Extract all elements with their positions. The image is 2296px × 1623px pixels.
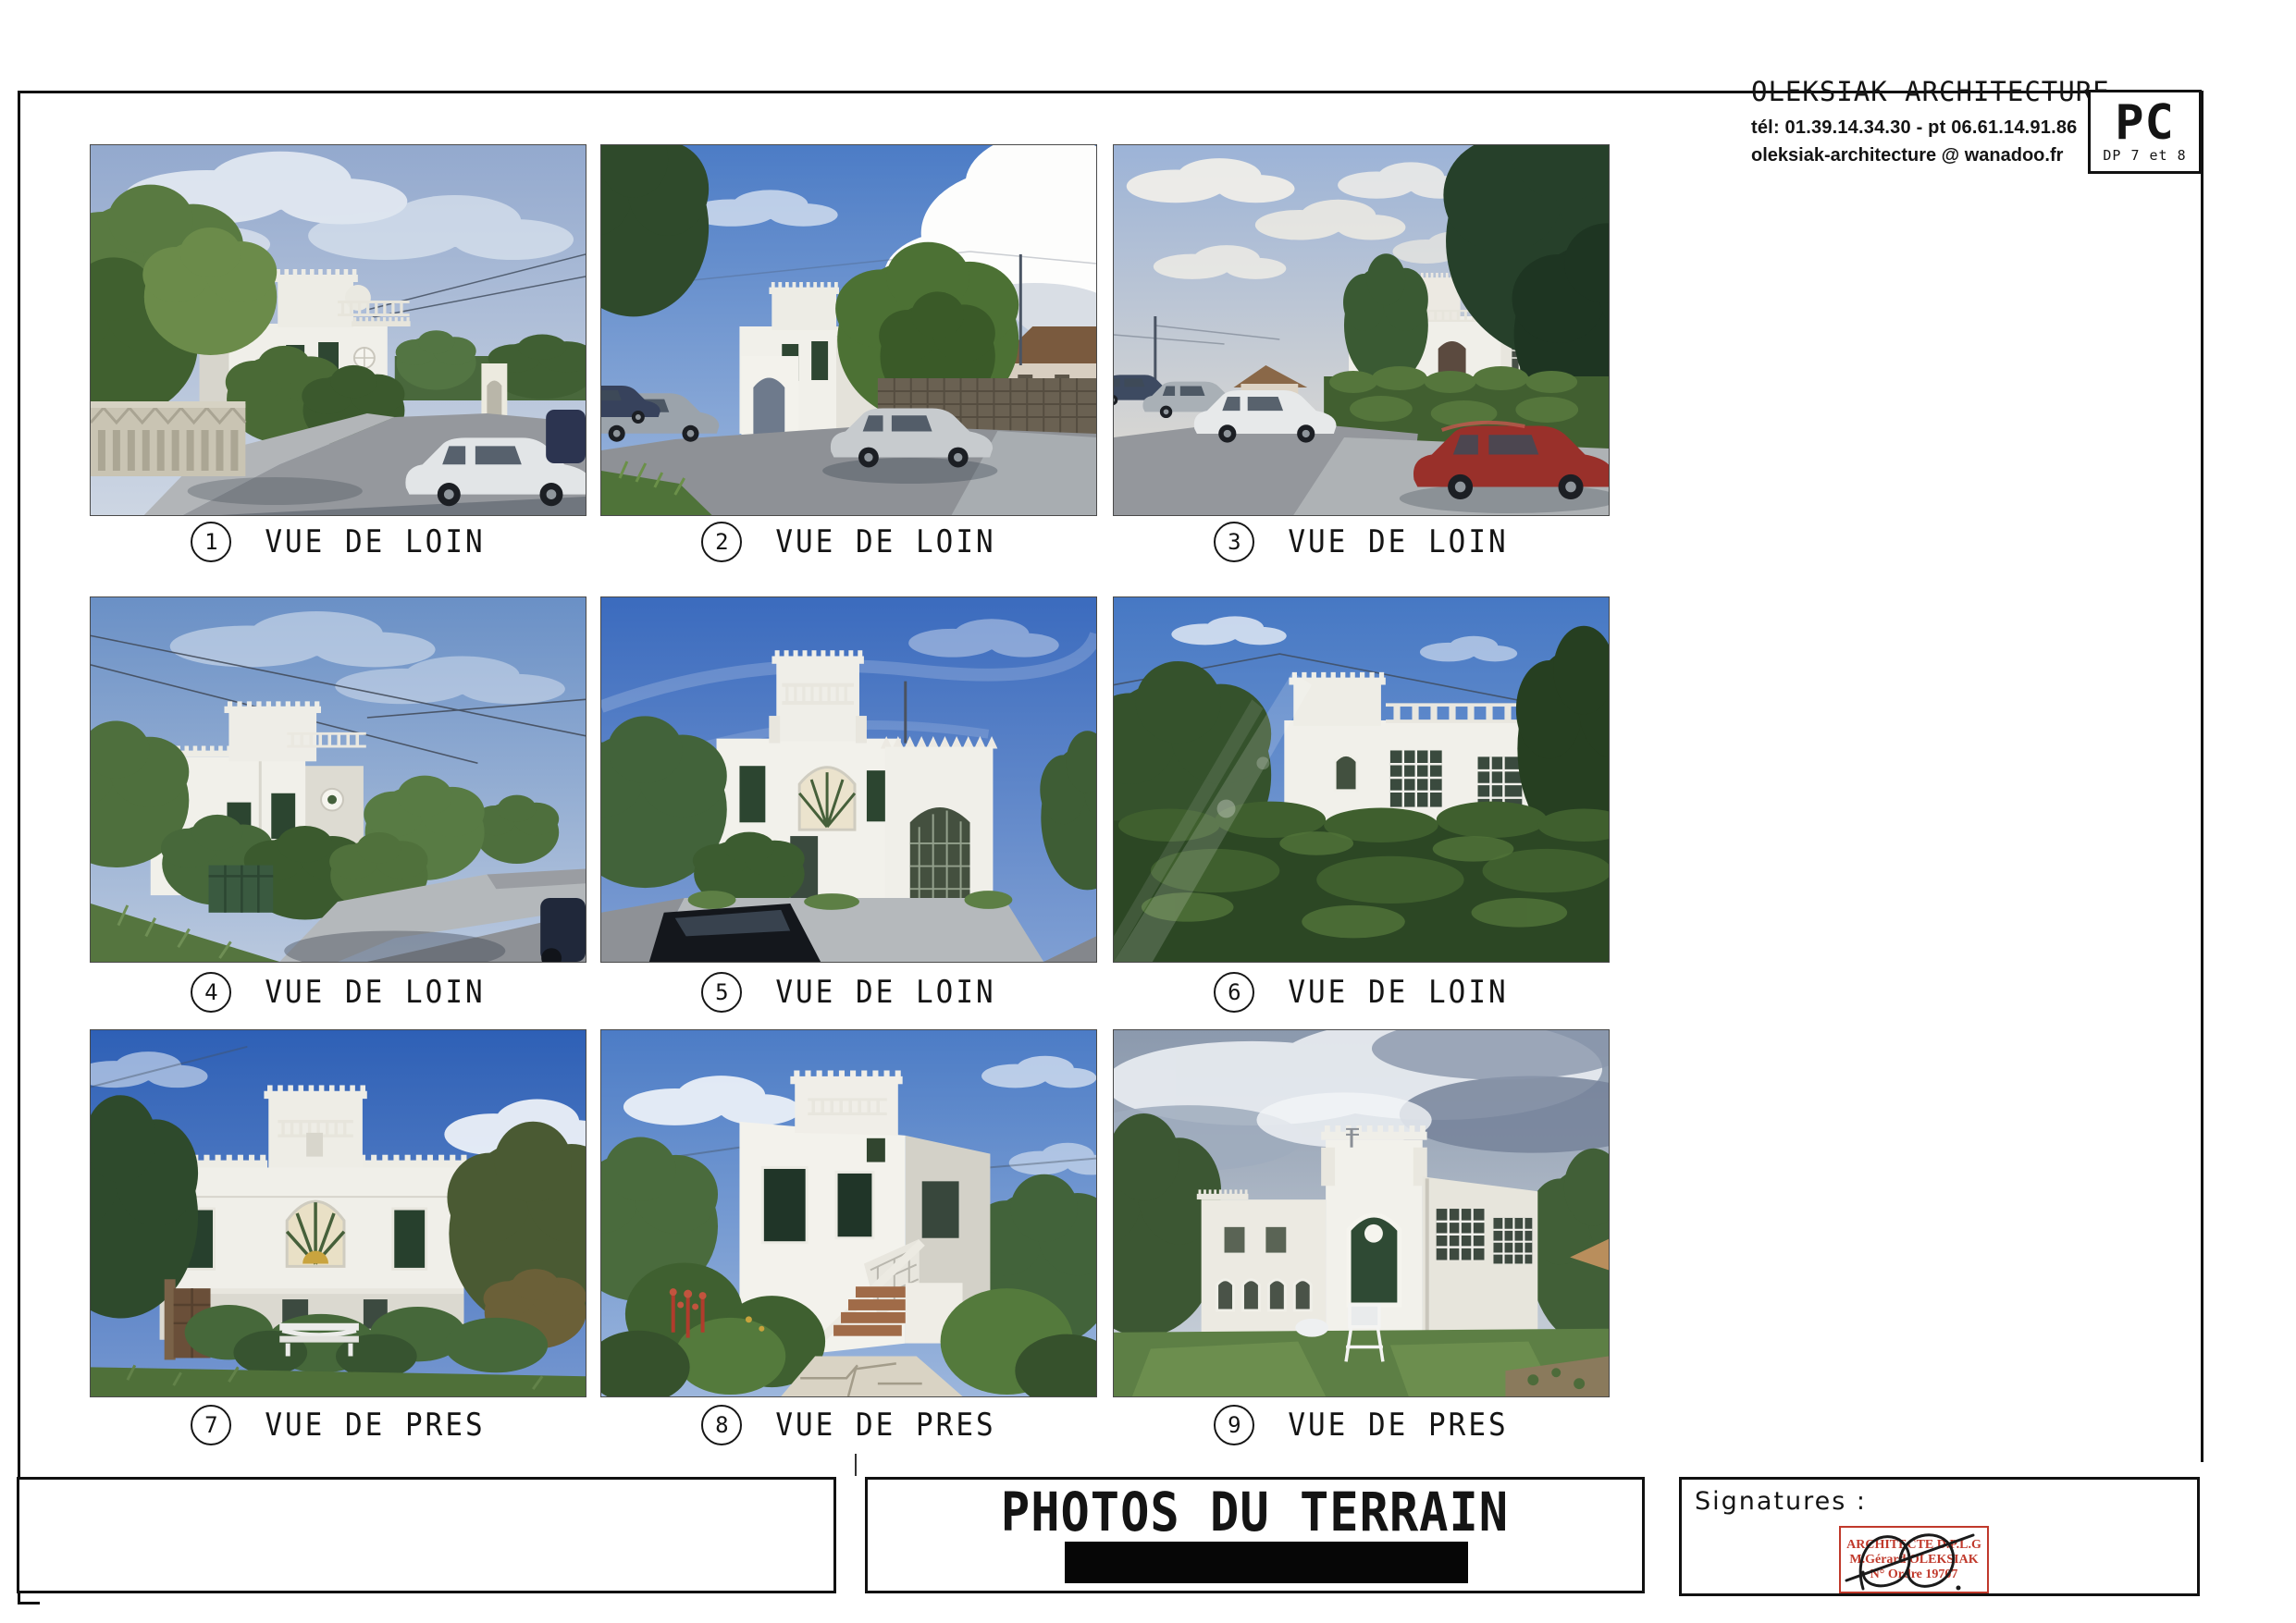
photo-4-caption: VUE DE LOIN xyxy=(265,975,485,1011)
photo-2 xyxy=(600,144,1097,516)
signatures-box: Signatures : ARCHITECTE D.P.L.G M.Gérard… xyxy=(1679,1477,2200,1596)
stamp-line-2: M.Gérard OLEKSIAK xyxy=(1849,1553,1978,1568)
photo-9 xyxy=(1113,1029,1610,1397)
caption-4: 4 VUE DE LOIN xyxy=(90,971,586,1014)
caption-7: 7 VUE DE PRES xyxy=(90,1404,586,1446)
photo-5 xyxy=(600,596,1097,963)
photo-8-number: 8 xyxy=(701,1405,742,1445)
photo-6-image xyxy=(1114,597,1609,962)
photo-2-number: 2 xyxy=(701,522,742,562)
photo-5-caption: VUE DE LOIN xyxy=(775,975,995,1011)
photo-6-caption: VUE DE LOIN xyxy=(1288,975,1508,1011)
stamp-line-1: ARCHITECTE D.P.L.G xyxy=(1846,1538,1981,1553)
phone-line: tél: 01.39.14.34.30 - pt 06.61.14.91.86 xyxy=(1751,117,2095,139)
footer-empty-box xyxy=(17,1477,836,1593)
permit-subcode: DP 7 et 8 xyxy=(2103,147,2186,164)
photo-7 xyxy=(90,1029,586,1397)
caption-9: 9 VUE DE PRES xyxy=(1113,1404,1610,1446)
photo-9-image xyxy=(1114,1030,1609,1396)
photo-7-number: 7 xyxy=(191,1405,231,1445)
photo-4 xyxy=(90,596,586,963)
sheet-title: PHOTOS DU TERRAIN xyxy=(868,1482,1642,1543)
photo-3-image xyxy=(1114,145,1609,515)
photo-1 xyxy=(90,144,586,516)
photo-1-caption: VUE DE LOIN xyxy=(265,524,485,560)
photo-5-image xyxy=(601,597,1096,962)
email-line: oleksiak-architecture @ wanadoo.fr xyxy=(1751,145,2095,166)
firm-name: OLEKSIAK ARCHITECTURE xyxy=(1751,76,2095,107)
photo-8 xyxy=(600,1029,1097,1397)
photo-7-caption: VUE DE PRES xyxy=(265,1408,485,1444)
frame-tick-mark xyxy=(855,1454,857,1476)
stamp-line-3: N° Ordre 19707 xyxy=(1870,1568,1958,1582)
caption-3: 3 VUE DE LOIN xyxy=(1113,521,1610,563)
permit-code-box: PC DP 7 et 8 xyxy=(2088,90,2202,174)
page-border-bottom-stub xyxy=(18,1602,40,1605)
caption-1: 1 VUE DE LOIN xyxy=(90,521,586,563)
title-box: PHOTOS DU TERRAIN xyxy=(865,1477,1645,1593)
caption-6: 6 VUE DE LOIN xyxy=(1113,971,1610,1014)
header-block: OLEKSIAK ARCHITECTURE tél: 01.39.14.34.3… xyxy=(1751,76,2095,166)
photo-9-caption: VUE DE PRES xyxy=(1288,1408,1508,1444)
photo-8-caption: VUE DE PRES xyxy=(775,1408,995,1444)
photo-8-image xyxy=(601,1030,1096,1396)
document-sheet: OLEKSIAK ARCHITECTURE tél: 01.39.14.34.3… xyxy=(0,0,2296,1623)
photo-3-number: 3 xyxy=(1214,522,1254,562)
photo-5-number: 5 xyxy=(701,972,742,1013)
photo-6 xyxy=(1113,596,1610,963)
signatures-label: Signatures : xyxy=(1695,1487,1867,1516)
caption-5: 5 VUE DE LOIN xyxy=(600,971,1097,1014)
permit-code: PC xyxy=(2115,101,2175,145)
photo-1-image xyxy=(91,145,586,515)
caption-8: 8 VUE DE PRES xyxy=(600,1404,1097,1446)
photo-3 xyxy=(1113,144,1610,516)
architect-stamp: ARCHITECTE D.P.L.G M.Gérard OLEKSIAK N° … xyxy=(1839,1526,1989,1593)
redacted-address-bar xyxy=(1065,1542,1468,1583)
photo-9-number: 9 xyxy=(1214,1405,1254,1445)
photo-1-number: 1 xyxy=(191,522,231,562)
caption-2: 2 VUE DE LOIN xyxy=(600,521,1097,563)
photo-4-image xyxy=(91,597,586,962)
photo-6-number: 6 xyxy=(1214,972,1254,1013)
photo-4-number: 4 xyxy=(191,972,231,1013)
photo-2-caption: VUE DE LOIN xyxy=(775,524,995,560)
photo-3-caption: VUE DE LOIN xyxy=(1288,524,1508,560)
photo-2-image xyxy=(601,145,1096,515)
photo-7-image xyxy=(91,1030,586,1396)
